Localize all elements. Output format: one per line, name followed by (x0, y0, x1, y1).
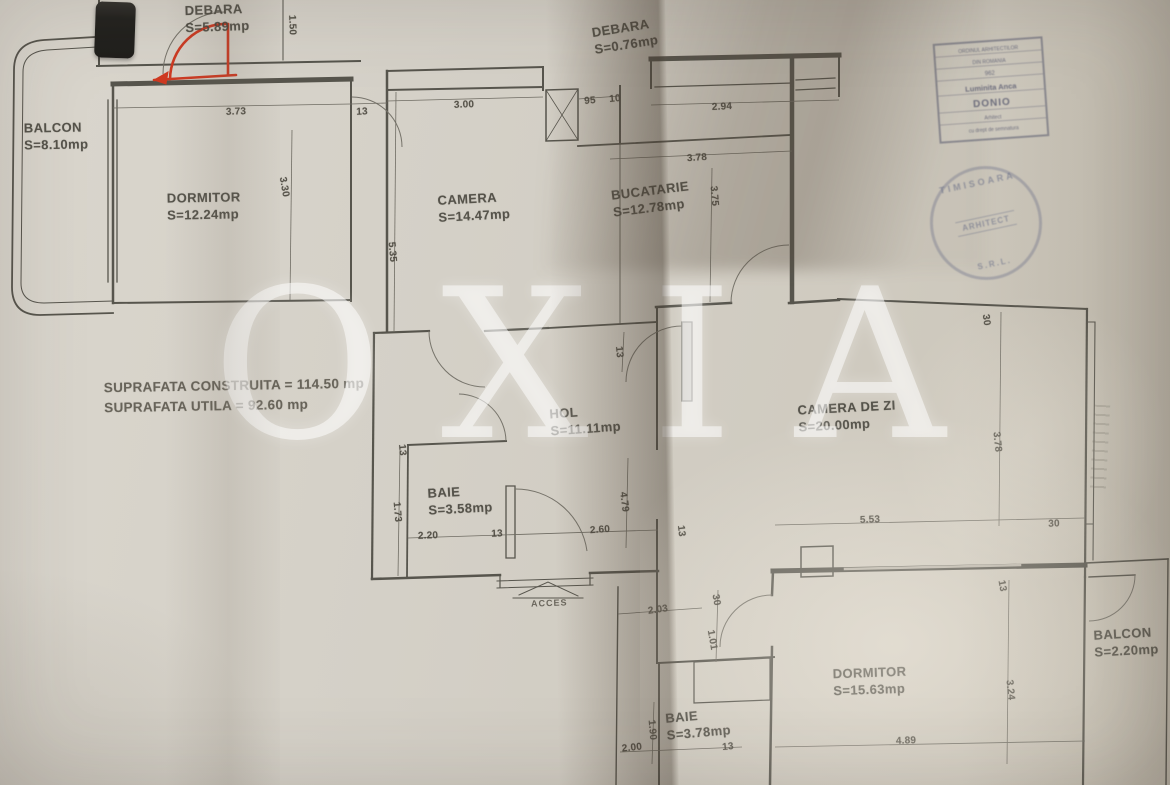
floorplan-photo: DEBARA S=5.89mp BALCON S=8.10mp DORMITOR… (0, 0, 1170, 785)
photo-vignette (0, 0, 1170, 785)
